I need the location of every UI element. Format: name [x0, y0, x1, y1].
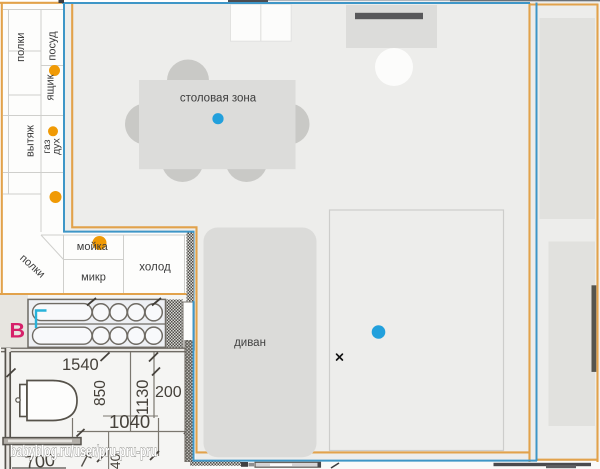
svg-text:вытяж: вытяж — [25, 124, 37, 157]
svg-text:столовая зона: столовая зона — [180, 93, 257, 105]
svg-text:мойка: мойка — [77, 241, 109, 253]
svg-text:диван: диван — [234, 337, 266, 349]
svg-text:1130: 1130 — [134, 380, 152, 415]
svg-text:дух: дух — [51, 137, 63, 154]
svg-text:холод: холод — [139, 262, 171, 274]
svg-text:1540: 1540 — [62, 356, 99, 374]
svg-text:200: 200 — [155, 384, 182, 401]
svg-text:микр: микр — [81, 272, 106, 284]
svg-text:850: 850 — [92, 380, 109, 406]
svg-text:1040: 1040 — [109, 411, 150, 432]
svg-text:посуд: посуд — [47, 31, 59, 61]
svg-text:babyblog.ru/user/pru-pru-pru: babyblog.ru/user/pru-pru-pru — [10, 444, 157, 461]
svg-text:ящик: ящик — [45, 74, 57, 100]
svg-text:полки: полки — [15, 33, 27, 62]
svg-text:В: В — [10, 319, 26, 343]
